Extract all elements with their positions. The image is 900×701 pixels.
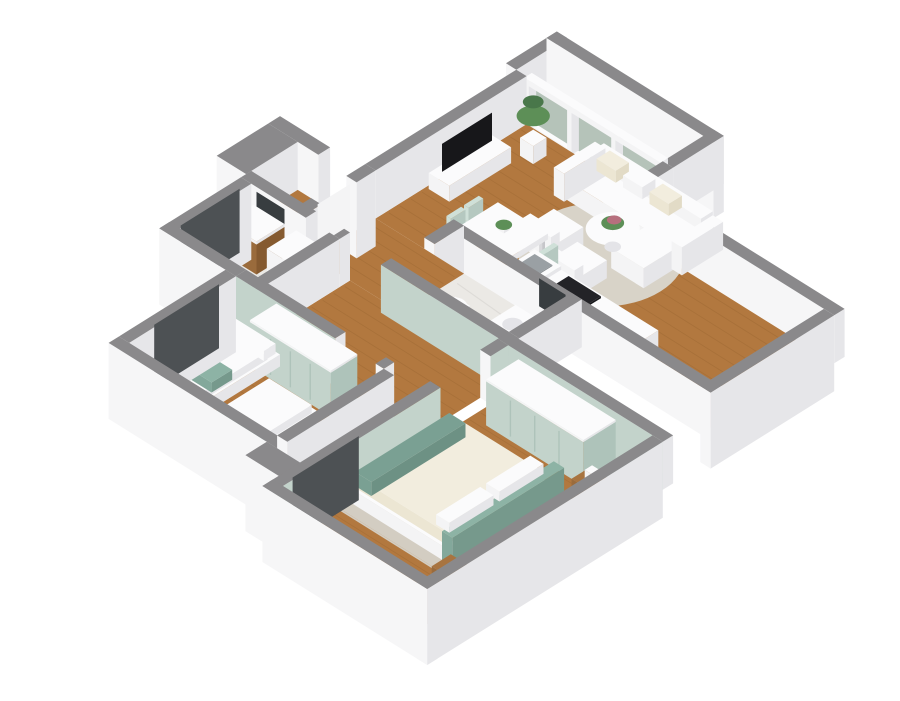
plant-leaves-living-2 <box>523 95 544 108</box>
wall-ne-face-e <box>834 309 844 363</box>
wall-laundry-north-b-face-e <box>340 233 350 287</box>
dining-plant <box>495 220 512 230</box>
wall-master-north-face-e <box>663 435 673 489</box>
wall-master-south-face-e <box>427 583 437 665</box>
wall-living-south-face-e <box>711 386 721 441</box>
coffee-table-flowers <box>607 215 622 224</box>
plant-leaves-living-1 <box>517 105 550 126</box>
sliding-door-post-mid1-face-s <box>567 108 571 155</box>
floor-plan-stage <box>0 0 900 701</box>
wall-hall-west-a-face-e <box>357 170 376 258</box>
coffee-table-base <box>604 242 621 252</box>
floor-plan-canvas <box>0 0 900 701</box>
